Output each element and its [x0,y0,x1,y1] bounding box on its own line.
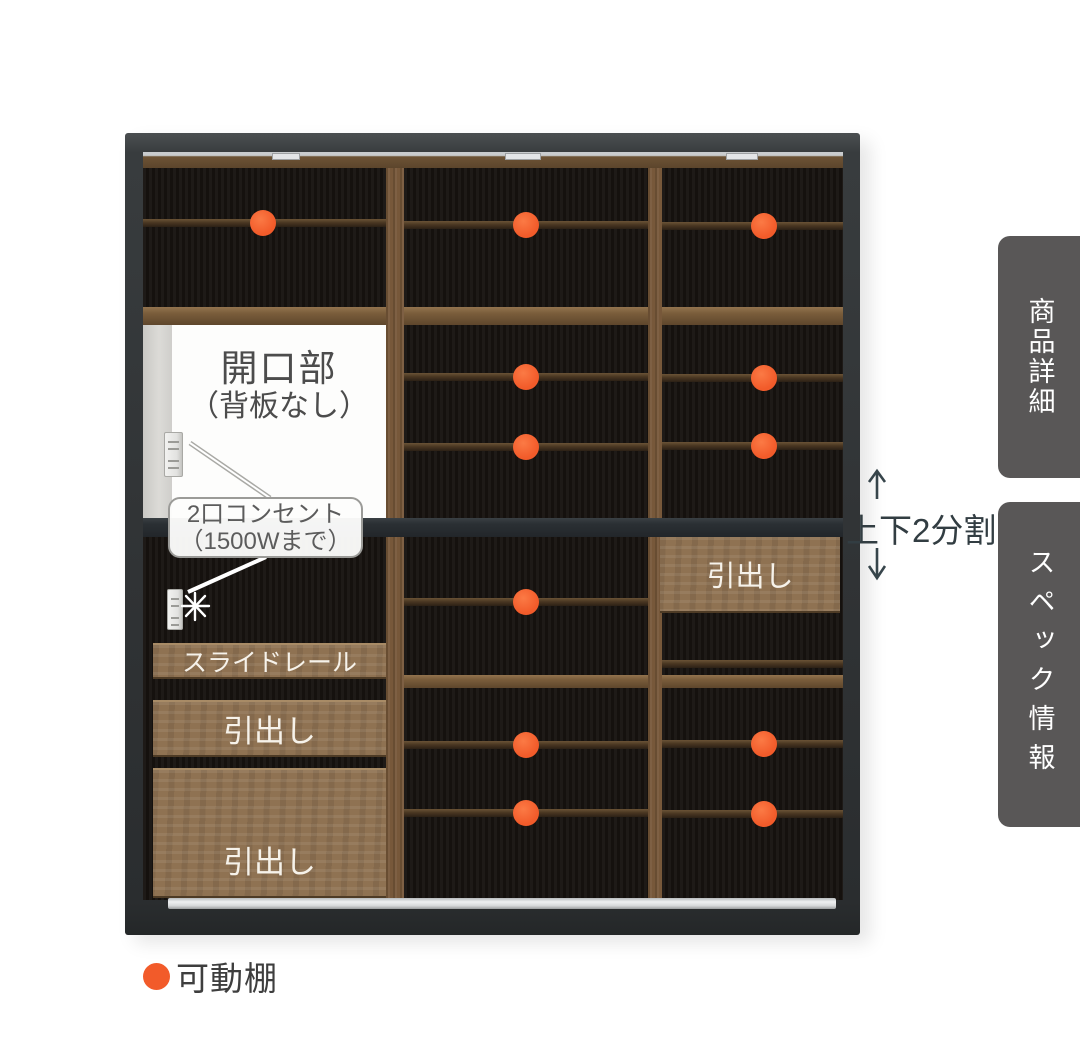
adjustable-shelf [404,221,648,229]
tab-product-details-label: 商品詳細 [1020,297,1059,417]
outlet-callout-line1: 2口コンセント [187,501,344,528]
adjustable-shelf [404,809,648,817]
door-roller-hardware [726,153,758,160]
outlet-callout: 2口コンセント （1500Wまで） [168,497,363,558]
tab-spec-info-label: スペック情報 [1020,548,1059,782]
cabinet-bottom-rail [168,898,836,909]
tab-product-details[interactable]: 商品詳細 [998,236,1080,478]
adjustable-shelf [404,443,648,451]
adjustable-shelf [404,598,648,606]
adjustable-shelf [143,219,386,227]
down-arrow-icon [869,548,885,578]
tab-spec-info[interactable]: スペック情報 [998,502,1080,827]
adjustable-shelf [662,442,843,450]
slide-rail-drawer: スライドレール [153,643,386,679]
drawer-label: 引出し [223,706,316,751]
drawer-left-top: 引出し [153,700,386,757]
up-arrow-icon [869,471,885,499]
legend-label: 可動棚 [176,952,278,1000]
compartment-back [662,325,843,518]
compartment-back [404,688,648,900]
adjustable-shelf [404,741,648,749]
opening-label-line2: （背板なし） [160,389,398,425]
drawer-left-bottom: 引出し [153,768,386,898]
fixed-shelf [404,675,648,688]
slide-rail-label: スライドレール [182,643,357,679]
adjustable-shelf [662,810,843,818]
compartment-back [404,325,648,518]
adjustable-shelf-dot-icon [143,963,170,990]
product-detail-image: 開口部 （背板なし） スライドレール 引出し 引出し 引出し 2口コンセント （… [0,0,1080,1059]
drawer-right: 引出し [660,535,840,613]
compartment-back [662,688,843,900]
compartment-back [143,168,386,307]
opening-label: 開口部 （背板なし） [160,348,398,425]
drawer-label: 引出し [706,553,793,595]
drawer-label: 引出し [223,837,316,882]
adjustable-shelf [662,222,843,230]
adjustable-shelf [662,660,843,668]
outlet-callout-line2: （1500Wまで） [179,528,351,555]
opening-label-line1: 開口部 [160,348,398,389]
adjustable-shelf [404,373,648,381]
door-roller-hardware [272,153,300,160]
adjustable-shelf [662,374,843,382]
compartment-back [404,537,648,675]
door-roller-hardware [505,153,541,160]
power-outlet-icon [164,432,183,477]
fixed-shelf [662,307,843,325]
split-annotation: 上下2分割 [846,504,996,552]
adjustable-shelf [662,740,843,748]
compartment-back [662,168,843,307]
power-outlet-icon [167,589,183,630]
fixed-shelf [143,307,386,325]
fixed-shelf [662,675,843,688]
fixed-shelf [404,307,648,325]
compartment-back [404,168,648,307]
legend: 可動棚 [143,952,278,1000]
